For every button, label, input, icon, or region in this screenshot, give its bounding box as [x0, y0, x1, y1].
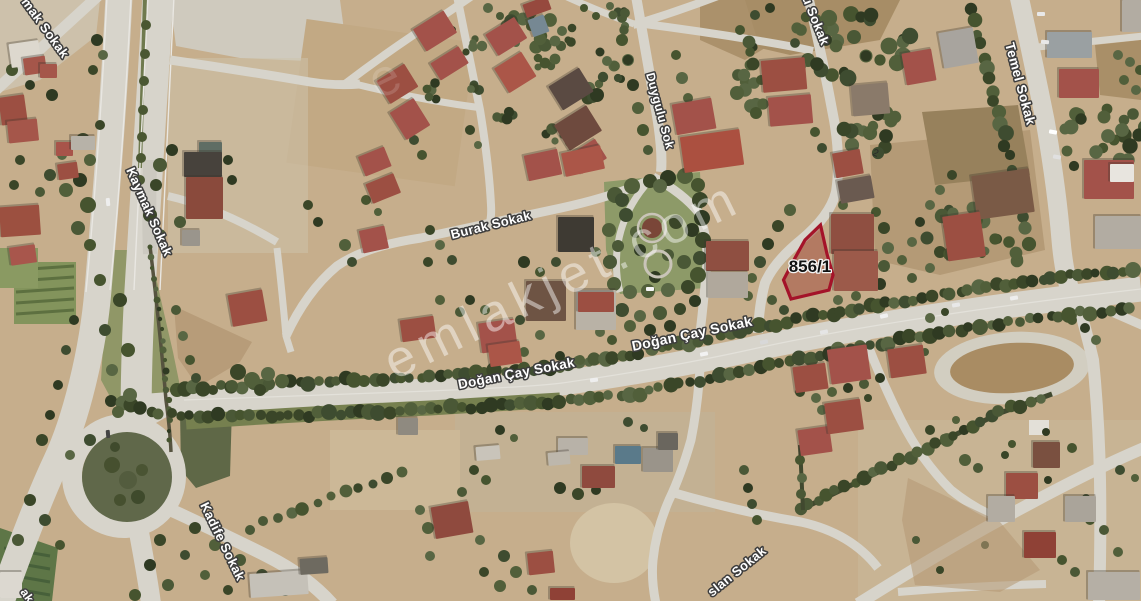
svg-text:856/1: 856/1	[789, 257, 832, 276]
